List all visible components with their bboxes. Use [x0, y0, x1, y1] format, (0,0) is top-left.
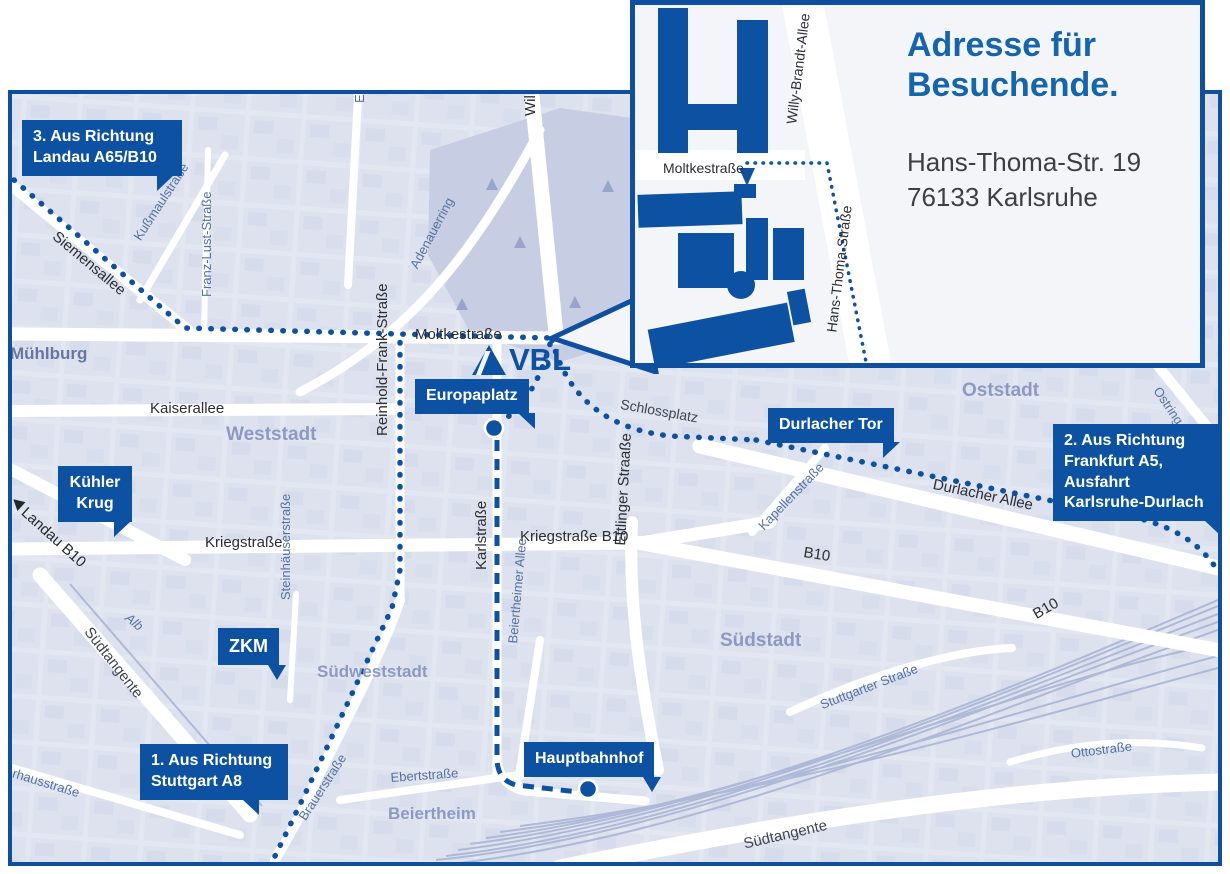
callout-frankfurt-line4: Karlsruhe-Durlach	[1064, 494, 1204, 511]
street-label-steinhaeuserstrasse: Steinhäuserstraße	[278, 494, 293, 600]
callout-stuttgart: 1. Aus Richtung Stuttgart A8	[140, 744, 288, 800]
callout-frankfurt-line1: 2. Aus Richtung	[1064, 432, 1185, 449]
street-label-kriegstrasse: Kriegstraße	[205, 534, 283, 551]
callout-durlacher-tor: Durlacher Tor	[768, 408, 894, 443]
callout-kuehler-krug-line1: Kühler	[70, 474, 121, 491]
callout-zkm-label: ZKM	[229, 636, 268, 656]
district-label-suedstadt: Südstadt	[720, 630, 801, 652]
callout-europaplatz-label: Europaplatz	[426, 387, 518, 404]
inset-address-line2: 76133 Karlsruhe	[907, 182, 1098, 212]
callout-landau-line1: 3. Aus Richtung	[33, 128, 154, 145]
callout-zkm: ZKM	[218, 628, 279, 665]
callout-kuehler-krug: Kühler Krug	[58, 466, 132, 522]
inset-title: Adresse für Besuchende.	[907, 25, 1119, 105]
district-label-oststadt: Oststadt	[962, 380, 1039, 402]
callout-stuttgart-line1: 1. Aus Richtung	[151, 752, 272, 769]
callout-hauptbahnhof-label: Hauptbahnhof	[535, 750, 643, 767]
callout-landau-line2: Landau A65/B10	[33, 149, 157, 166]
district-label-muehlburg: Mühlburg	[10, 344, 87, 364]
inset-panel: Moltkestraße Willy-Brandt-Allee Hans-Tho…	[630, 0, 1205, 368]
street-label-erzbergerstrasse: Erzbergerstraße	[352, 90, 367, 103]
street-label-karlstrasse: Karlstraße	[473, 501, 490, 570]
callout-frankfurt: 2. Aus Richtung Frankfurt A5, Ausfahrt K…	[1053, 424, 1221, 521]
street-label-franz-lust-strasse: Franz-Lust-Straße	[199, 192, 214, 297]
callout-landau: 3. Aus Richtung Landau A65/B10	[22, 120, 182, 176]
inset-address-line1: Hans-Thoma-Str. 19	[907, 147, 1141, 177]
callout-durlacher-tor-label: Durlacher Tor	[779, 416, 883, 433]
callout-kuehler-krug-line2: Krug	[76, 495, 113, 512]
callout-stuttgart-line2: Stuttgart A8	[151, 773, 242, 790]
inset-address: Hans-Thoma-Str. 19 76133 Karlsruhe	[907, 145, 1141, 215]
callout-hauptbahnhof: Hauptbahnhof	[524, 742, 654, 777]
inset-street-label-moltkestrasse: Moltkestraße	[663, 160, 744, 176]
street-label-kaiserallee: Kaiserallee	[150, 400, 224, 417]
vbl-triangle-icon	[472, 345, 506, 375]
street-label-reinhold-frank-strasse: Reinhold-Frank-Straße	[374, 283, 391, 436]
callout-europaplatz: Europaplatz	[415, 379, 529, 414]
inset-title-line1: Adresse für	[907, 26, 1096, 64]
visitor-map-page: Moltkestraße Kaiserallee Kriegstraße Kri…	[0, 0, 1230, 874]
district-label-suedweststadt: Südweststadt	[317, 662, 428, 682]
district-label-beiertheim: Beiertheim	[388, 804, 476, 824]
street-label-willy-brandt-allee: Willy-Brandt-Allee	[522, 90, 539, 116]
street-label-moltkestrasse: Moltkestraße	[415, 326, 502, 343]
inset-title-line2: Besuchende.	[907, 66, 1119, 104]
callout-frankfurt-line2: Frankfurt A5,	[1064, 453, 1163, 470]
district-label-weststadt: Weststadt	[226, 424, 316, 446]
callout-frankfurt-line3: Ausfahrt	[1064, 474, 1130, 491]
